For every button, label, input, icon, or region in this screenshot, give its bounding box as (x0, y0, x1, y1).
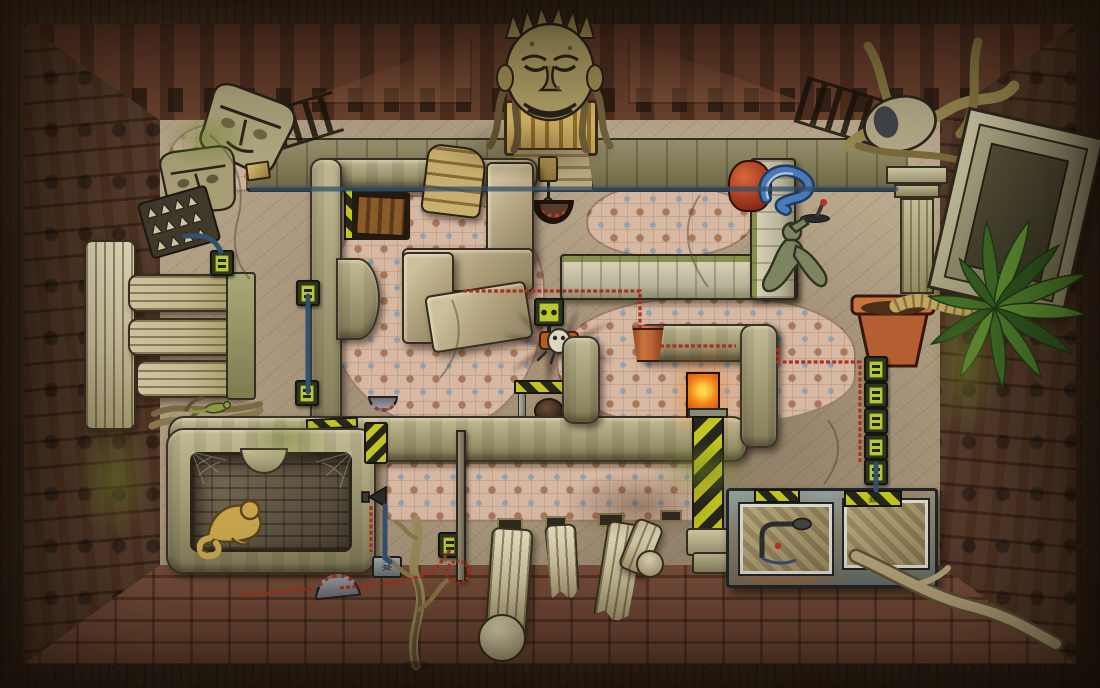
game-scene: ☠ (0, 0, 1100, 688)
walkway-connector (562, 336, 600, 424)
wooden-ladder[interactable] (355, 195, 407, 238)
pit-figure[interactable] (192, 486, 274, 554)
dead-tree (376, 514, 456, 672)
cabinet-lever (748, 512, 818, 567)
rusty-pole (456, 430, 466, 582)
arc-switch-upper[interactable] (296, 280, 320, 306)
switch-glyph-icon (869, 361, 883, 378)
switch-column-3[interactable] (864, 408, 888, 434)
stone-slab (486, 162, 534, 262)
hazard-pillar (692, 416, 724, 534)
skull-grate: ☠ (844, 490, 902, 507)
fallen-statue (746, 216, 846, 311)
column-end-disc (478, 614, 526, 662)
switch-column-4[interactable] (864, 434, 888, 460)
hazard-sign (364, 422, 388, 464)
stone-block-small (245, 160, 271, 181)
switch-glyph-icon (869, 387, 883, 404)
walkway-east-vertical (740, 324, 778, 448)
lantern-stem (547, 182, 550, 198)
hanging-lantern[interactable] (538, 156, 558, 182)
column-plinths (226, 272, 256, 400)
vent-grate (754, 489, 800, 503)
switch-glyph-icon (869, 439, 883, 456)
switch-column-5[interactable] (864, 459, 888, 485)
west-ledge-switch[interactable] (210, 250, 234, 276)
figure-tail (200, 538, 219, 556)
palm-fronds (928, 218, 1089, 388)
skull-icon: ☠ (868, 493, 879, 505)
switch-column-1[interactable] (864, 356, 888, 382)
switch-glyph-icon (300, 385, 314, 402)
switch-glyph-icon (215, 255, 229, 272)
switch-glyph-icon (301, 285, 315, 302)
brick-ladder[interactable] (420, 143, 488, 220)
face-idol (470, 4, 630, 154)
switch-column-2[interactable] (864, 382, 888, 408)
switch-glyph-icon (869, 464, 883, 481)
switch-glyph-icon (869, 413, 883, 430)
lizard-branch (150, 382, 265, 428)
cabinet-root (838, 538, 1078, 648)
arc-switch-lower[interactable] (295, 380, 319, 406)
walkway-arc-bulge (336, 258, 380, 340)
speaker-horn (360, 482, 390, 512)
column-socket (660, 510, 682, 522)
